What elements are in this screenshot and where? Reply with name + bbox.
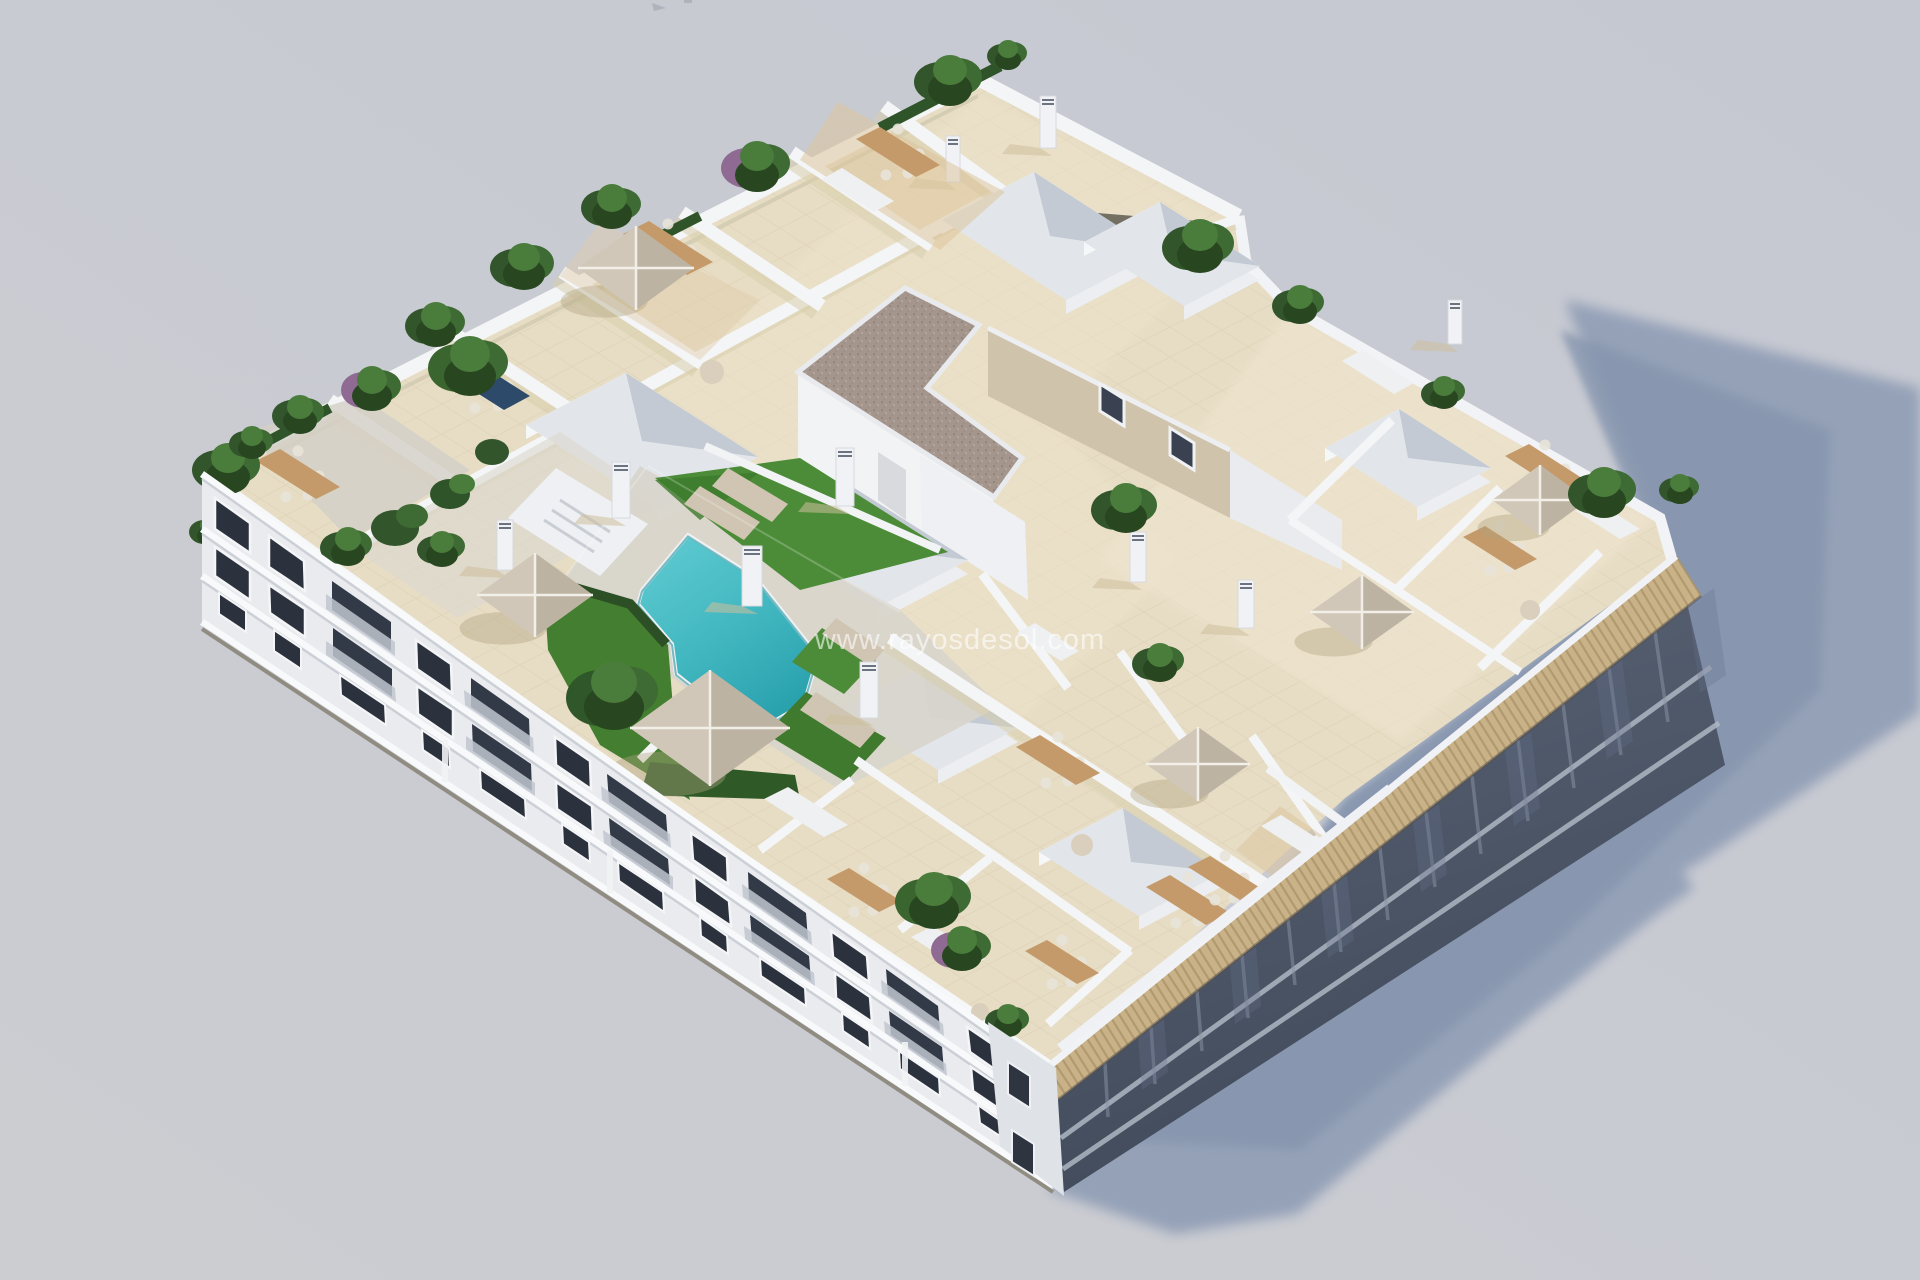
svg-text:www.rayosdesol.com: www.rayosdesol.com (814, 624, 1105, 656)
